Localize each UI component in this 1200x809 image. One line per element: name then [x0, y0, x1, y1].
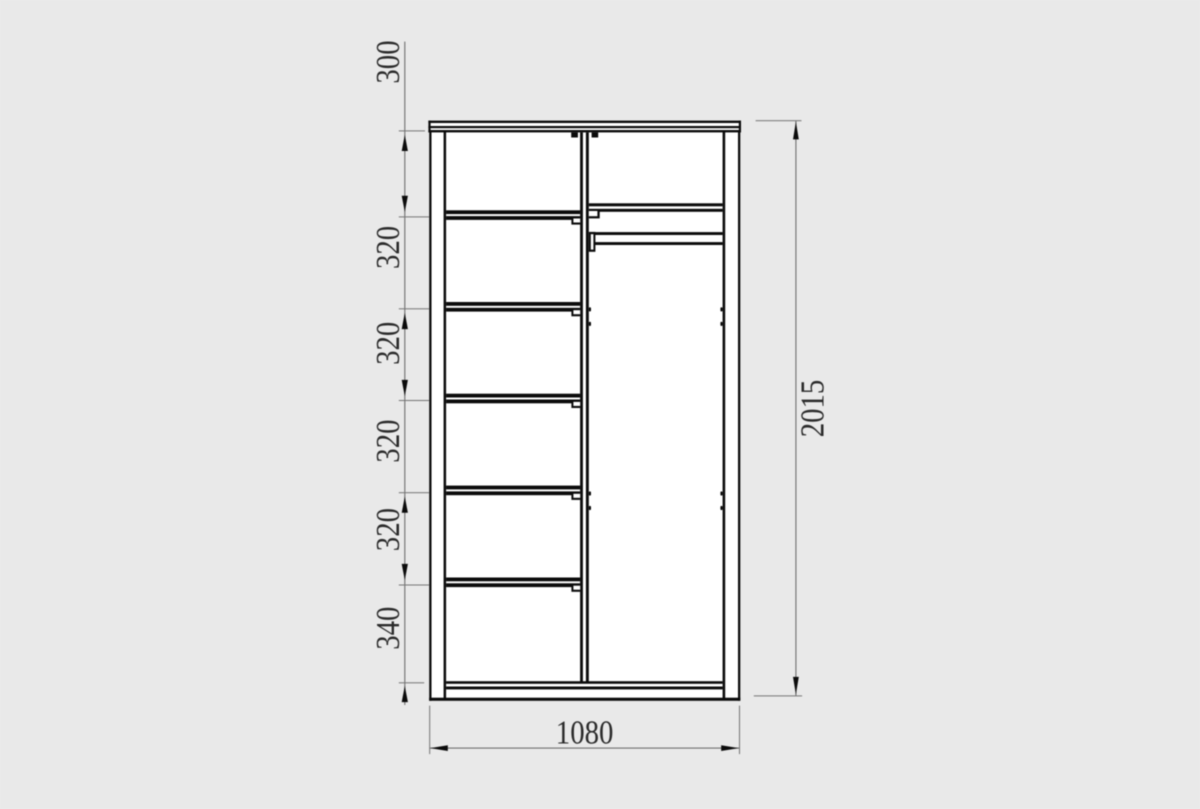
svg-text:320: 320: [369, 508, 407, 551]
svg-text:2015: 2015: [793, 380, 831, 438]
svg-text:320: 320: [369, 226, 407, 269]
svg-text:340: 340: [369, 607, 407, 650]
svg-text:320: 320: [369, 322, 407, 365]
svg-text:1080: 1080: [556, 714, 614, 752]
svg-text:320: 320: [369, 419, 407, 462]
svg-text:300: 300: [369, 40, 407, 83]
